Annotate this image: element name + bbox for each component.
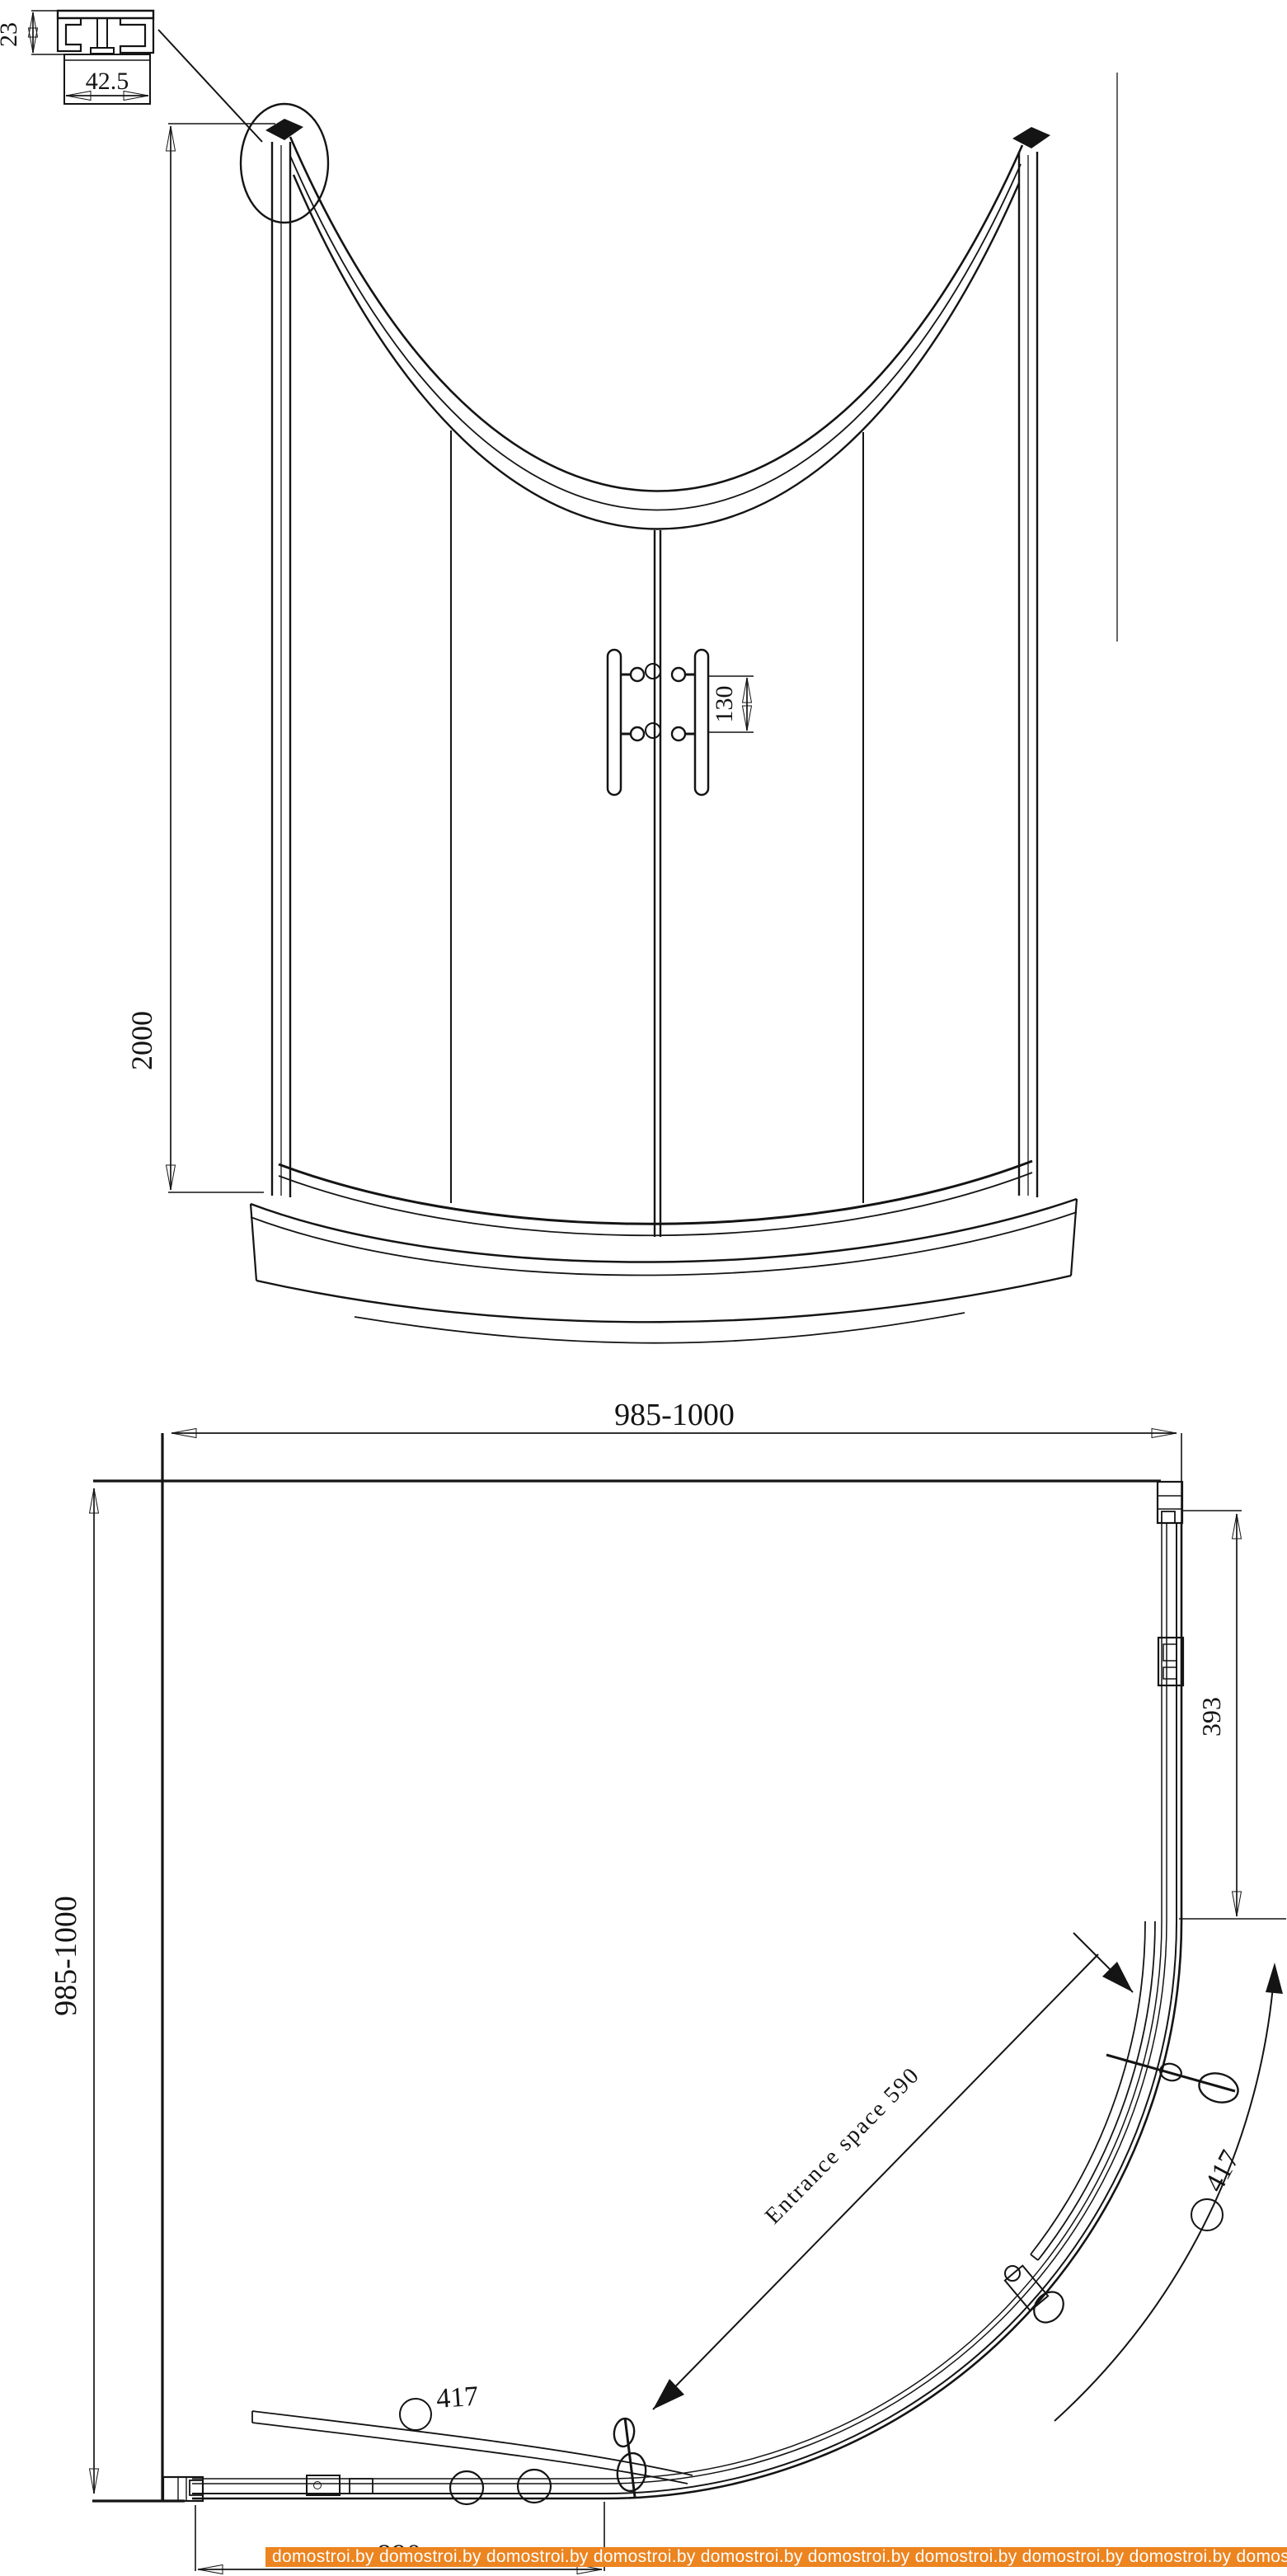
dim-plan-depth: 985-1000 [49, 1488, 94, 2494]
dim-42-5-label: 42.5 [86, 68, 129, 95]
plan-depth-label: 985-1000 [49, 1896, 83, 2016]
dim-130: 130 [707, 676, 754, 732]
dim-plan-width: 985-1000 [171, 1398, 1181, 1523]
glass-dividers [451, 430, 863, 1237]
profile-detail-section: 23 42.5 [0, 11, 328, 223]
dim-23-label: 23 [0, 22, 22, 47]
right-handle-bar [695, 650, 708, 795]
plan-width-label: 985-1000 [614, 1398, 735, 1432]
dim-entrance-space: Entrance space 590 [653, 1933, 1133, 2409]
dim-23: 23 [0, 11, 64, 54]
drawing-sheet: 23 42.5 [0, 0, 1287, 2576]
right-wall-profile [1158, 1482, 1182, 1523]
dim-42-5: 42.5 [66, 68, 148, 96]
right-post [1019, 152, 1037, 1197]
entrance-label: Entrance space 590 [760, 2062, 925, 2230]
shower-tray [251, 1199, 1077, 1343]
dim-2000: 2000 [125, 124, 275, 1192]
plan-view: 985-1000 985-1000 [49, 1398, 1286, 2571]
bottom-wall-profile [163, 2477, 203, 2501]
panel-417-right-label: 417 [1199, 2146, 1246, 2197]
left-post [272, 142, 290, 1197]
dim-130-label: 130 [711, 686, 738, 723]
dim-393: 393 [1179, 1511, 1286, 1919]
left-handle-bar [608, 650, 621, 795]
dim-393-label: 393 [1196, 1697, 1226, 1737]
panel-417-bottom-label: 417 [435, 2381, 479, 2414]
dim-417-right: 417 [1054, 1963, 1283, 2421]
watermark-bar: domostroi.by domostroi.by domostroi.by d… [265, 2547, 1287, 2567]
dim-417-bottom: 417 [400, 2381, 479, 2430]
right-door-panel [1031, 1921, 1155, 2260]
curved-top-rail [290, 137, 1022, 529]
bottom-door-handle [613, 2417, 648, 2497]
door-handles [608, 650, 708, 795]
front-view: 130 2000 [125, 73, 1117, 1343]
curved-track-frame [192, 1523, 1181, 2498]
right-post-cap [1012, 127, 1050, 148]
left-post-cap [265, 119, 303, 140]
dim-2000-label: 2000 [125, 1011, 158, 1070]
watermark-text: domostroi.by domostroi.by domostroi.by d… [272, 2547, 1287, 2566]
detail-leader-line [158, 30, 262, 142]
shower-enclosure-technical-drawing: 23 42.5 [0, 0, 1287, 2576]
